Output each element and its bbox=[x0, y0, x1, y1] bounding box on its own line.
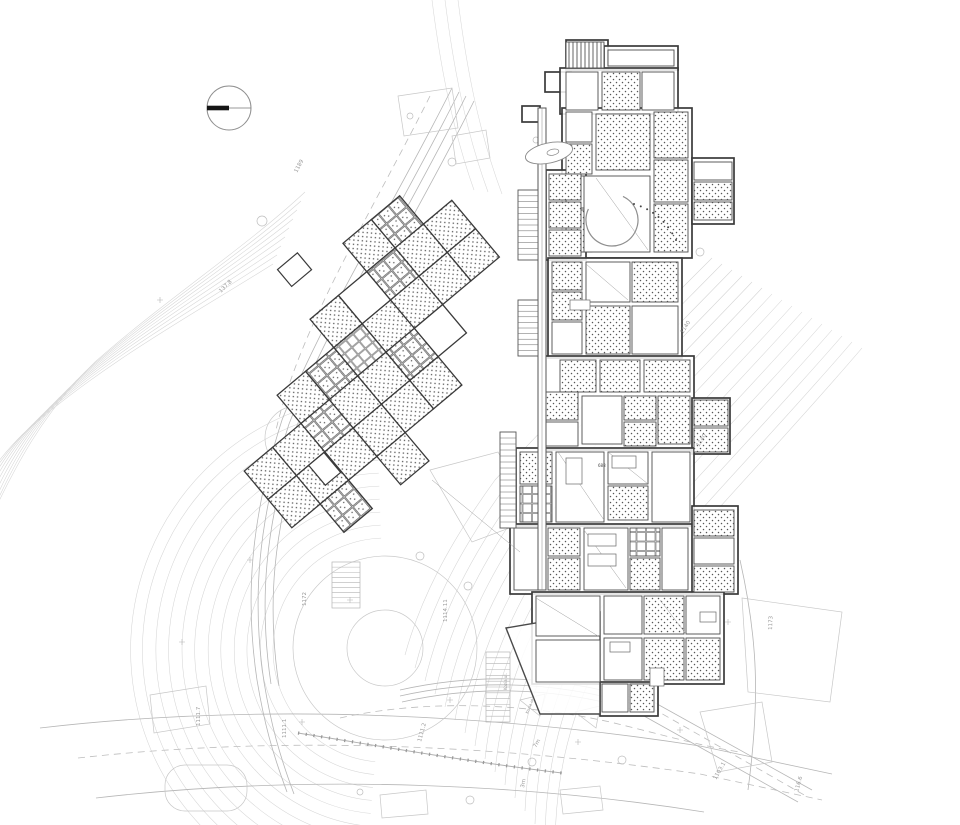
room bbox=[632, 306, 678, 354]
map-label: 116.6 bbox=[794, 775, 804, 792]
map-label: 1111.2 bbox=[417, 722, 428, 742]
room bbox=[544, 422, 578, 446]
right-building bbox=[432, 40, 738, 716]
room bbox=[694, 538, 734, 564]
room bbox=[630, 684, 654, 712]
stair bbox=[500, 432, 516, 528]
room bbox=[608, 486, 648, 520]
room bbox=[548, 528, 580, 556]
room bbox=[654, 112, 688, 158]
room bbox=[630, 528, 660, 556]
room bbox=[552, 322, 582, 354]
furniture bbox=[588, 554, 616, 566]
map-label: 3m bbox=[520, 779, 527, 789]
room bbox=[582, 396, 622, 444]
room bbox=[624, 396, 656, 420]
room bbox=[694, 202, 732, 220]
map-label: 1172 bbox=[302, 592, 308, 606]
room bbox=[602, 684, 628, 712]
room bbox=[549, 202, 581, 228]
north-bar bbox=[207, 106, 229, 111]
room bbox=[552, 262, 582, 290]
room bbox=[596, 114, 650, 170]
map-label: 1111.7 bbox=[196, 706, 202, 726]
furniture bbox=[610, 642, 630, 652]
map-label: 1111.1 bbox=[282, 719, 288, 738]
room bbox=[694, 400, 728, 426]
map-label: 1173 bbox=[768, 615, 775, 630]
room bbox=[549, 230, 581, 256]
site-plan-drawing: 11401140117311721114.1111891103.1116.613… bbox=[0, 0, 960, 825]
room bbox=[520, 452, 552, 484]
room bbox=[642, 72, 674, 110]
furniture bbox=[700, 612, 716, 622]
room bbox=[600, 360, 640, 392]
room bbox=[566, 72, 598, 110]
context-stair bbox=[332, 562, 360, 608]
room bbox=[654, 204, 688, 252]
room bbox=[566, 42, 604, 68]
room bbox=[560, 360, 596, 392]
furniture bbox=[566, 458, 582, 484]
room bbox=[584, 176, 650, 252]
room bbox=[654, 160, 688, 202]
room bbox=[549, 174, 581, 200]
furniture bbox=[570, 300, 590, 310]
furniture bbox=[588, 534, 616, 546]
map-label: 1103.1 bbox=[713, 761, 728, 781]
room bbox=[686, 638, 720, 680]
room bbox=[694, 510, 734, 536]
map-label: Kozia ul. bbox=[503, 673, 508, 690]
map-label: 1114.11 bbox=[443, 599, 449, 622]
room bbox=[630, 558, 660, 590]
room bbox=[536, 596, 600, 636]
contour-lines-top bbox=[432, 0, 502, 194]
map-label: 137.8 bbox=[218, 279, 234, 295]
room bbox=[644, 596, 684, 634]
contour-lines-left bbox=[0, 192, 305, 626]
room bbox=[602, 72, 640, 110]
map-label: 1189 bbox=[293, 158, 305, 174]
room bbox=[586, 306, 630, 354]
room bbox=[624, 422, 656, 446]
room bbox=[536, 640, 600, 682]
room bbox=[694, 182, 732, 200]
stair bbox=[518, 190, 538, 260]
furniture bbox=[650, 668, 664, 686]
site-plan: 11401140117311721114.1111891103.1116.613… bbox=[0, 0, 960, 825]
map-label: Kozia ul. bbox=[524, 697, 535, 714]
room bbox=[694, 566, 734, 592]
room bbox=[608, 50, 674, 66]
room bbox=[632, 262, 678, 302]
room bbox=[544, 392, 578, 420]
room bbox=[604, 596, 642, 634]
north-indicator bbox=[207, 86, 251, 130]
furniture bbox=[612, 456, 636, 468]
room bbox=[694, 162, 732, 180]
room bbox=[644, 360, 690, 392]
room bbox=[566, 112, 592, 142]
stair bbox=[518, 300, 538, 356]
room bbox=[548, 558, 580, 590]
room bbox=[662, 528, 688, 590]
room bbox=[658, 396, 690, 444]
context-buildings bbox=[150, 88, 842, 818]
map-label: 688 bbox=[598, 463, 606, 468]
room bbox=[652, 452, 690, 522]
room bbox=[520, 486, 552, 522]
